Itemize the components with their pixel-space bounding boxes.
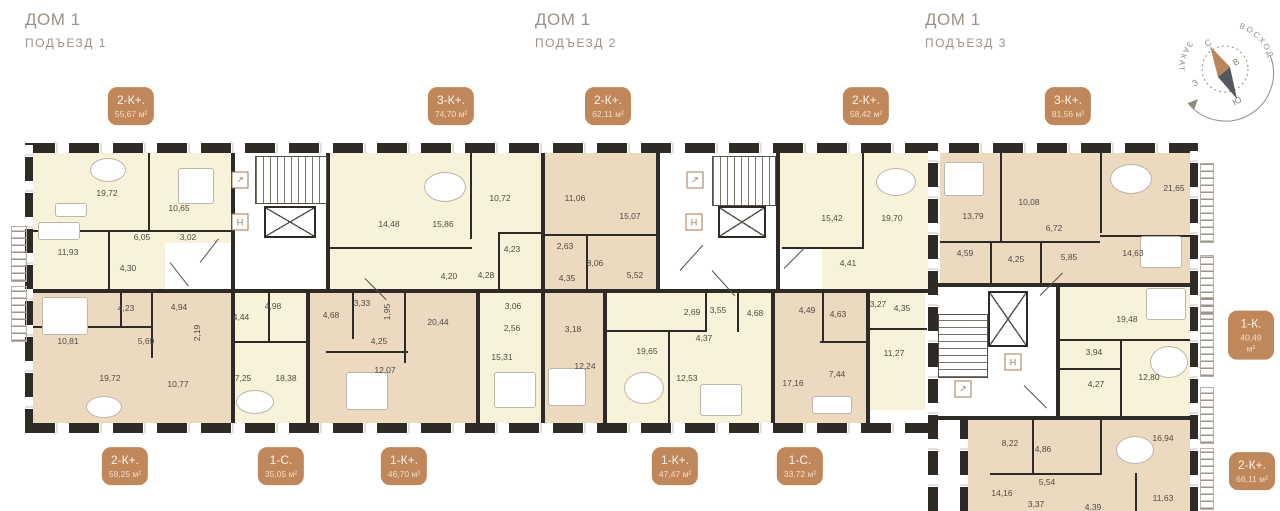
furniture <box>236 390 274 414</box>
room-area-label: 11,63 <box>1153 493 1174 503</box>
exterior-wall <box>25 143 1198 153</box>
apartment-badge[interactable]: 3-К+.74,70 м² <box>428 87 474 125</box>
stairs <box>938 314 988 378</box>
room-area-label: 2,19 <box>192 325 202 342</box>
room-area-label: 12,07 <box>374 365 395 375</box>
riser-arrow-icon: ↗ <box>232 172 249 189</box>
lobby-area <box>165 243 231 289</box>
furniture <box>42 297 88 335</box>
room-area-label: 4,98 <box>265 301 282 311</box>
room-area-label: 4,44 <box>233 312 250 322</box>
apartment-badge[interactable]: 1-К+.47,47 м² <box>652 447 698 485</box>
balcony-railing <box>11 226 27 282</box>
room-area-label: 10,81 <box>57 336 78 346</box>
furniture <box>548 368 586 406</box>
room-area-label: 10,77 <box>167 379 188 389</box>
exterior-wall <box>1190 143 1198 511</box>
room-area-label: 3,37 <box>1028 499 1045 509</box>
compass-west-label: З <box>1190 77 1199 88</box>
wall-partition <box>1000 153 1002 241</box>
elevator-shaft <box>718 206 766 238</box>
entrance-3-header: ДОМ 1 ПОДЪЕЗД 3 <box>925 10 1007 50</box>
balcony-railing <box>1200 163 1214 243</box>
furniture <box>55 203 87 217</box>
room-area-label: 6,72 <box>1046 223 1063 233</box>
apartment-type-label: 2-К+. <box>850 93 882 109</box>
furniture <box>944 162 984 196</box>
room-area-label: 12,24 <box>574 361 595 371</box>
room-area-label: 4,94 <box>171 302 188 312</box>
furniture <box>700 384 742 416</box>
elevator-icon: Н <box>686 214 703 231</box>
furniture <box>1140 236 1182 268</box>
room-area-label: 4,39 <box>1085 502 1102 511</box>
wall-segment <box>936 283 1190 287</box>
furniture <box>876 168 916 196</box>
wall-partition <box>108 230 110 291</box>
room-area-label: 3,18 <box>565 324 582 334</box>
room-area-label: 3,27 <box>870 299 887 309</box>
apartment-badge[interactable]: 2-К+.66,11 м² <box>1229 452 1275 490</box>
apartment-area-label: 47,47 м² <box>659 469 691 480</box>
lobby-area <box>780 248 822 289</box>
compass-arrow-head <box>1188 99 1198 110</box>
room-area-label: 4,49 <box>799 305 816 315</box>
apartment-area-label: 46,70 м² <box>388 469 420 480</box>
furniture <box>178 168 214 204</box>
room-area-label: 8,22 <box>1002 438 1019 448</box>
furniture <box>494 372 536 408</box>
room-area-label: 2,69 <box>684 307 701 317</box>
room-area-label: 19,48 <box>1116 314 1137 324</box>
room-area-label: 12,53 <box>676 373 697 383</box>
apartment-type-label: 2-К+. <box>1236 458 1268 474</box>
wall-partition <box>470 153 472 239</box>
wall-partition <box>820 341 868 343</box>
apartment-badge[interactable]: 2-К+.58,42 м² <box>843 87 889 125</box>
riser-arrow-icon: ↗ <box>955 381 972 398</box>
room-area-label: 10,65 <box>168 203 189 213</box>
room-area-label: 4,25 <box>1008 254 1025 264</box>
apartment-type-label: 1-К+. <box>659 453 691 469</box>
room-area-label: 5,69 <box>138 336 155 346</box>
elevator-icon: Н <box>1005 354 1022 371</box>
stairs <box>255 156 327 204</box>
room-area-label: 4,27 <box>1088 379 1105 389</box>
wall-segment <box>656 153 660 291</box>
apartment-area-label: 40,49 м² <box>1235 332 1267 354</box>
apartment-badge[interactable]: 2-К+.62,11 м² <box>585 87 631 125</box>
room-area-label: 4,20 <box>441 271 458 281</box>
room-area-label: 1,95 <box>382 304 392 321</box>
furniture <box>90 158 126 182</box>
apartment-badge[interactable]: 2-К+.55,67 м² <box>108 87 154 125</box>
entrance-subtitle: ПОДЪЕЗД 2 <box>535 36 617 50</box>
apartment-type-label: 1-К. <box>1235 317 1267 333</box>
wall-partition <box>737 291 739 332</box>
room-area-label: 18,38 <box>275 373 296 383</box>
wall-partition <box>1060 339 1190 341</box>
room-area-label: 3,02 <box>180 232 197 242</box>
wall-partition <box>1060 368 1122 370</box>
apartment-badge[interactable]: 2-К+.58,25 м² <box>102 447 148 485</box>
wall-partition <box>545 234 658 236</box>
room-area-label: 3,55 <box>710 305 727 315</box>
apartment-type-label: 3-К+. <box>1052 93 1084 109</box>
compass-east-label: В <box>1231 56 1241 68</box>
furniture <box>424 172 466 202</box>
room-area-label: 6,05 <box>134 232 151 242</box>
wall-partition <box>1100 418 1102 475</box>
room-area-label: 4,25 <box>371 336 388 346</box>
wall-segment <box>866 291 870 423</box>
apartment-area-label: 33,72 м² <box>784 469 816 480</box>
apartment-area-label: 55,67 м² <box>115 109 147 120</box>
sunset-label: ЗАКАТ <box>1177 40 1195 74</box>
exterior-wall <box>928 143 938 511</box>
apartment-type-label: 2-К+. <box>115 93 147 109</box>
furniture <box>86 396 122 418</box>
wall-segment <box>771 291 775 423</box>
room-area-label: 5,85 <box>1061 252 1078 262</box>
wall-partition <box>1135 473 1137 511</box>
apartment-badge[interactable]: 1-К+.46,70 м² <box>381 447 427 485</box>
room-area-label: 17,16 <box>782 378 803 388</box>
room-area-label: 11,93 <box>58 247 79 257</box>
compass: С В Ю З ВОСХОД ЗАКАТ <box>1160 10 1280 130</box>
wall-partition <box>233 341 310 343</box>
room-area-label: 4,68 <box>323 310 340 320</box>
room-area-label: 3,06 <box>505 301 522 311</box>
wall-partition <box>498 232 500 291</box>
compass-north-label: С <box>1203 37 1214 49</box>
room-area-label: 3,94 <box>1086 347 1103 357</box>
wall-partition <box>326 351 408 353</box>
wall-partition <box>1040 241 1042 285</box>
wall-partition <box>990 241 992 285</box>
exterior-wall <box>960 418 968 511</box>
room-area-label: 4,30 <box>120 263 137 273</box>
room-area-label: 19,72 <box>99 373 120 383</box>
room-area-label: 14,16 <box>991 488 1012 498</box>
wall-partition <box>1120 341 1122 418</box>
furniture <box>346 372 388 410</box>
apartment-type-label: 1-С. <box>784 453 816 469</box>
arc-label: ВОСХОД <box>1238 21 1275 60</box>
apartment-area-label: 66,11 м² <box>1236 474 1268 485</box>
apartment-type-label: 1-С. <box>265 453 297 469</box>
room-area-label: 15,86 <box>432 219 453 229</box>
room-area-label: 20,44 <box>427 317 448 327</box>
apartment-area-label: 35,05 м² <box>265 469 297 480</box>
apartment-type-label: 2-К+. <box>592 93 624 109</box>
room-area-label: 7,25 <box>235 373 252 383</box>
apartment-area-label: 62,11 м² <box>592 109 624 120</box>
room-area-label: 4,86 <box>1035 444 1052 454</box>
room-area-label: 2,56 <box>504 323 521 333</box>
room-area-label: 4,28 <box>478 270 495 280</box>
room-area-label: 19,65 <box>636 346 657 356</box>
furniture <box>1116 436 1154 464</box>
room-area-label: 15,07 <box>619 211 640 221</box>
apartment-area-label: 58,42 м² <box>850 109 882 120</box>
room-area-label: 15,31 <box>491 352 512 362</box>
apartment-type-label: 1-К+. <box>388 453 420 469</box>
apartment-type-label: 3-К+. <box>435 93 467 109</box>
entrance-2-header: ДОМ 1 ПОДЪЕЗД 2 <box>535 10 617 50</box>
compass-south-label: Ю <box>1231 94 1244 107</box>
room-area-label: 21,65 <box>1163 183 1184 193</box>
wall-partition <box>782 247 864 249</box>
apartment-badge[interactable]: 1-К.40,49 м² <box>1228 311 1274 360</box>
wall-partition <box>605 330 705 332</box>
wall-segment <box>936 416 1190 420</box>
entrance-1-header: ДОМ 1 ПОДЪЕЗД 1 <box>25 10 107 50</box>
room-area-label: 4,23 <box>118 303 135 313</box>
room-area-label: 2,63 <box>557 241 574 251</box>
entrance-subtitle: ПОДЪЕЗД 3 <box>925 36 1007 50</box>
floor-plan-page: ДОМ 1 ПОДЪЕЗД 1 ДОМ 1 ПОДЪЕЗД 2 ДОМ 1 ПО… <box>0 0 1280 511</box>
wall-partition <box>868 328 927 330</box>
wall-partition <box>862 153 864 249</box>
furniture <box>1146 288 1186 320</box>
balcony-railing <box>1200 297 1214 377</box>
wall-partition <box>268 291 270 343</box>
furniture <box>624 372 664 404</box>
apartment-type-label: 2-К+. <box>109 453 141 469</box>
room-area-label: 3,33 <box>354 298 371 308</box>
apartment-area-label: 58,25 м² <box>109 469 141 480</box>
room-area-label: 4,68 <box>747 308 764 318</box>
elevator-shaft <box>988 291 1028 347</box>
room-area-label: 10,72 <box>489 193 510 203</box>
room-area-label: 4,37 <box>696 333 713 343</box>
wall-segment <box>776 153 780 291</box>
room-area-label: 14,48 <box>378 219 399 229</box>
wall-partition <box>940 241 1100 243</box>
apartment-badge[interactable]: 1-С.33,72 м² <box>777 447 823 485</box>
room-area-label: 11,27 <box>884 348 905 358</box>
balcony-railing <box>1200 448 1214 510</box>
room-area-label: 4,63 <box>830 309 847 319</box>
furniture <box>812 396 852 414</box>
wall-partition <box>705 291 707 332</box>
arc-label: ЗАКАТ <box>1177 40 1195 74</box>
room-area-label: 4,35 <box>894 303 911 313</box>
room-area-label: 4,23 <box>504 244 521 254</box>
sunrise-label: ВОСХОД <box>1238 21 1275 60</box>
room-area-label: 5,54 <box>1039 477 1056 487</box>
room-area-label: 11,06 <box>565 193 586 203</box>
house-title: ДОМ 1 <box>535 10 617 30</box>
elevator-shaft <box>264 206 316 238</box>
wall-partition <box>822 291 824 341</box>
balcony-railing <box>1200 387 1214 444</box>
room-area-label: 13,79 <box>962 211 983 221</box>
room-area-label: 4,41 <box>840 258 857 268</box>
house-title: ДОМ 1 <box>925 10 1007 30</box>
room-area-label: 19,72 <box>96 188 117 198</box>
stairs <box>712 156 776 206</box>
room-area-label: 15,42 <box>821 213 842 223</box>
entrance-subtitle: ПОДЪЕЗД 1 <box>25 36 107 50</box>
apartment-area-label: 74,70 м² <box>435 109 467 120</box>
wall-segment <box>33 289 932 293</box>
wall-segment <box>541 153 545 423</box>
wall-segment <box>476 291 480 423</box>
apartment-badge[interactable]: 1-С.35,05 м² <box>258 447 304 485</box>
wall-partition <box>1100 153 1102 233</box>
wall-segment <box>1056 285 1060 418</box>
room-area-label: 16,94 <box>1152 433 1173 443</box>
wall-partition <box>330 247 472 249</box>
wall-partition <box>990 473 1100 475</box>
wall-segment <box>306 291 310 423</box>
room-area-label: 19,70 <box>881 213 902 223</box>
room-area-label: 7,44 <box>829 369 846 379</box>
room-area-label: 14,63 <box>1122 248 1143 258</box>
exterior-wall <box>25 423 940 433</box>
balcony-railing <box>11 286 27 342</box>
wall-partition <box>668 332 670 423</box>
house-title: ДОМ 1 <box>25 10 107 30</box>
room-area-label: 12,80 <box>1138 372 1159 382</box>
room-area-label: 8,06 <box>587 258 604 268</box>
elevator-icon: Н <box>232 214 249 231</box>
riser-arrow-icon: ↗ <box>687 172 704 189</box>
furniture <box>38 222 80 240</box>
wall-partition <box>1032 418 1034 473</box>
wall-segment <box>603 291 607 423</box>
room-area-label: 4,35 <box>559 273 576 283</box>
wall-partition <box>148 153 150 232</box>
apartment-area-label: 81,56 м² <box>1052 109 1084 120</box>
wall-partition <box>498 232 543 234</box>
room-area-label: 4,59 <box>957 248 974 258</box>
wall-partition <box>151 291 153 358</box>
room-area-label: 10,08 <box>1018 197 1039 207</box>
furniture <box>1110 164 1152 194</box>
room-area-label: 5,52 <box>627 270 644 280</box>
apartment-badge[interactable]: 3-К+.81,56 м² <box>1045 87 1091 125</box>
